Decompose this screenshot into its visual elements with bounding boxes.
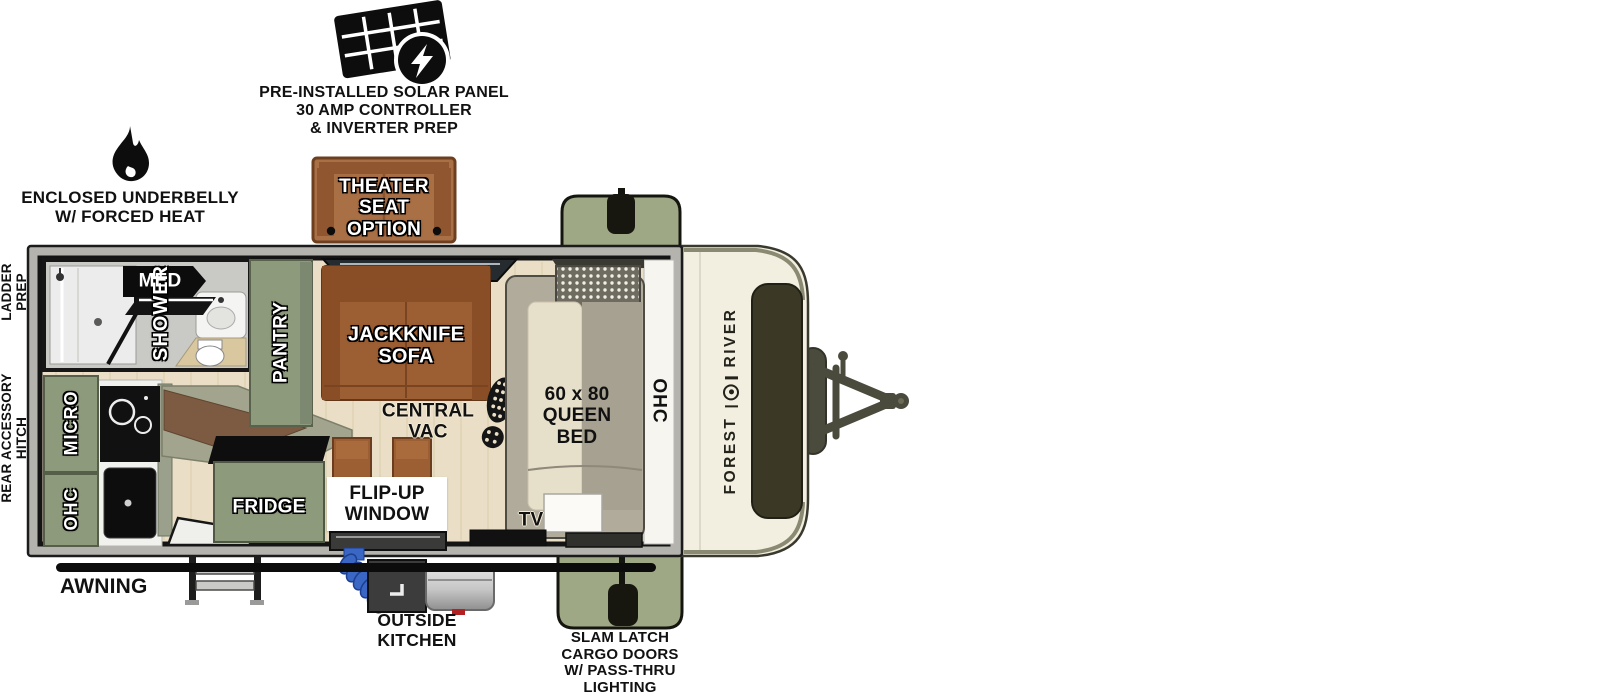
tv-cabinet (544, 494, 602, 532)
outside-kitchen-label: OUTSIDE KITCHEN (352, 611, 482, 650)
ladder-prep-label: LADDER PREP (0, 263, 29, 320)
brand-word-river: RIVER (722, 308, 740, 368)
flame-icon (113, 126, 149, 181)
outside-kitchen-graphic (336, 548, 494, 616)
solar-panel-icon (336, 2, 450, 88)
shower-head-icon (56, 273, 64, 281)
tv-label: TV (519, 509, 544, 530)
theater-seat-label: THEATER SEAT OPTION (320, 176, 448, 240)
central-vac-label: CENTRAL VAC (382, 401, 474, 444)
floorplan-page: PRE-INSTALLED SOLAR PANEL 30 AMP CONTROL… (0, 0, 1600, 697)
tv-graphic (470, 530, 546, 546)
pantry-label: PANTRY (270, 301, 291, 383)
awning-bar-graphic (56, 563, 656, 572)
fridge-graphic (208, 436, 330, 542)
front-cap-graphic (682, 246, 909, 556)
rear-accessory-hitch-label: REAR ACCESSORY HITCH (0, 373, 29, 502)
med-label: MED (139, 270, 182, 291)
micro-label: MICRO (61, 391, 81, 456)
ohc-front-label: OHC (648, 378, 669, 423)
jackknife-sofa-label: JACKKNIFE SOFA (348, 324, 464, 369)
cargo-doors-label: SLAM LATCH CARGO DOORS W/ PASS-THRU LIGH… (538, 630, 702, 696)
flip-up-window-graphic (330, 532, 446, 550)
fridge-label: FRIDGE (233, 496, 306, 517)
brand-word-forest: FOREST (722, 417, 740, 495)
underbelly-note: ENCLOSED UNDERBELLY W/ FORCED HEAT (0, 188, 260, 226)
forest-river-logo: FOREST RIVER (722, 308, 740, 495)
flip-up-window-label-box: FLIP-UP WINDOW (327, 477, 447, 531)
ohc-rear-label: OHC (61, 488, 81, 531)
queen-bed-label: 60 x 80 QUEEN BED (543, 384, 612, 448)
solar-note: PRE-INSTALLED SOLAR PANEL 30 AMP CONTROL… (253, 84, 515, 138)
flip-up-window-label: FLIP-UP WINDOW (345, 483, 430, 526)
awning-label: AWNING (60, 575, 148, 599)
forest-river-emblem (723, 377, 739, 408)
hitch-graphic (800, 348, 909, 454)
